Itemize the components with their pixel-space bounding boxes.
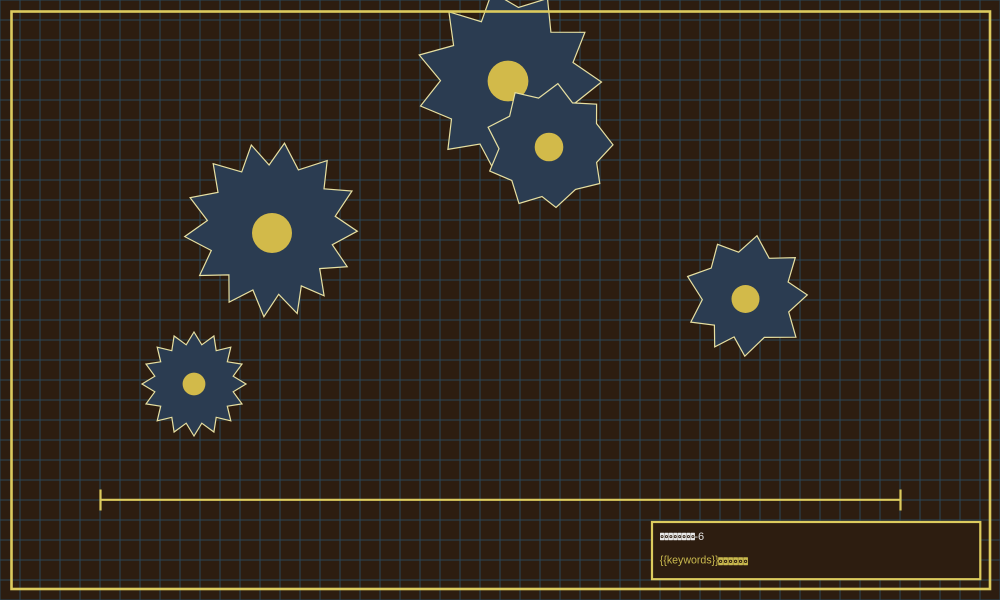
svg-text:{{keywords}}: {{keywords}} <box>660 555 719 567</box>
svg-text:-6: -6 <box>694 531 704 543</box>
